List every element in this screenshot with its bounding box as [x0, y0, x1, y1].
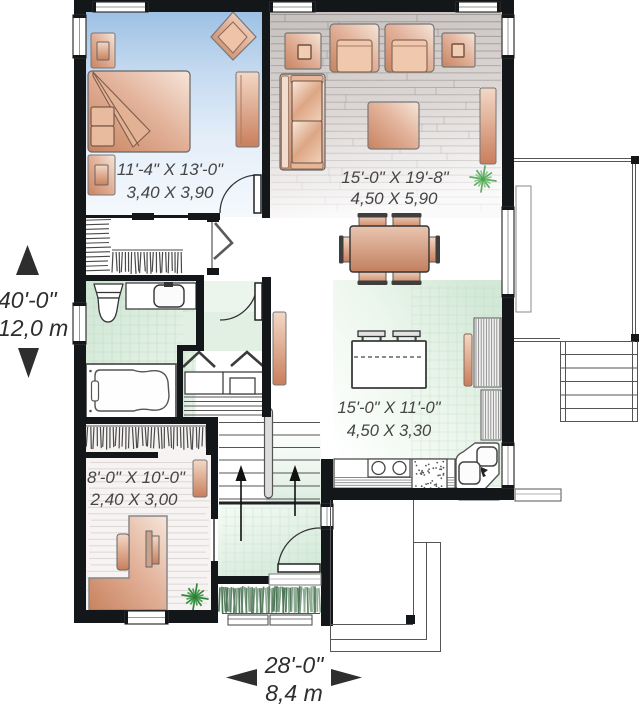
svg-text:4,50 X 3,30: 4,50 X 3,30: [347, 422, 432, 440]
svg-text:8,4 m: 8,4 m: [265, 680, 323, 706]
svg-text:11'-4" X 13'-0": 11'-4" X 13'-0": [117, 160, 224, 179]
svg-text:3,40 X 3,90: 3,40 X 3,90: [127, 183, 215, 202]
svg-text:4,50 X 5,90: 4,50 X 5,90: [351, 189, 439, 208]
svg-text:8'-0" X 10'-0": 8'-0" X 10'-0": [87, 468, 186, 487]
svg-text:28'-0": 28'-0": [264, 652, 325, 678]
svg-text:15'-0" X 11'-0": 15'-0" X 11'-0": [337, 399, 441, 417]
svg-text:2,40 X 3,00: 2,40 X 3,00: [90, 490, 179, 509]
svg-text:15'-0" X 19'-8": 15'-0" X 19'-8": [341, 168, 449, 187]
svg-text:12,0 m: 12,0 m: [0, 315, 68, 341]
svg-text:40'-0": 40'-0": [0, 287, 58, 313]
